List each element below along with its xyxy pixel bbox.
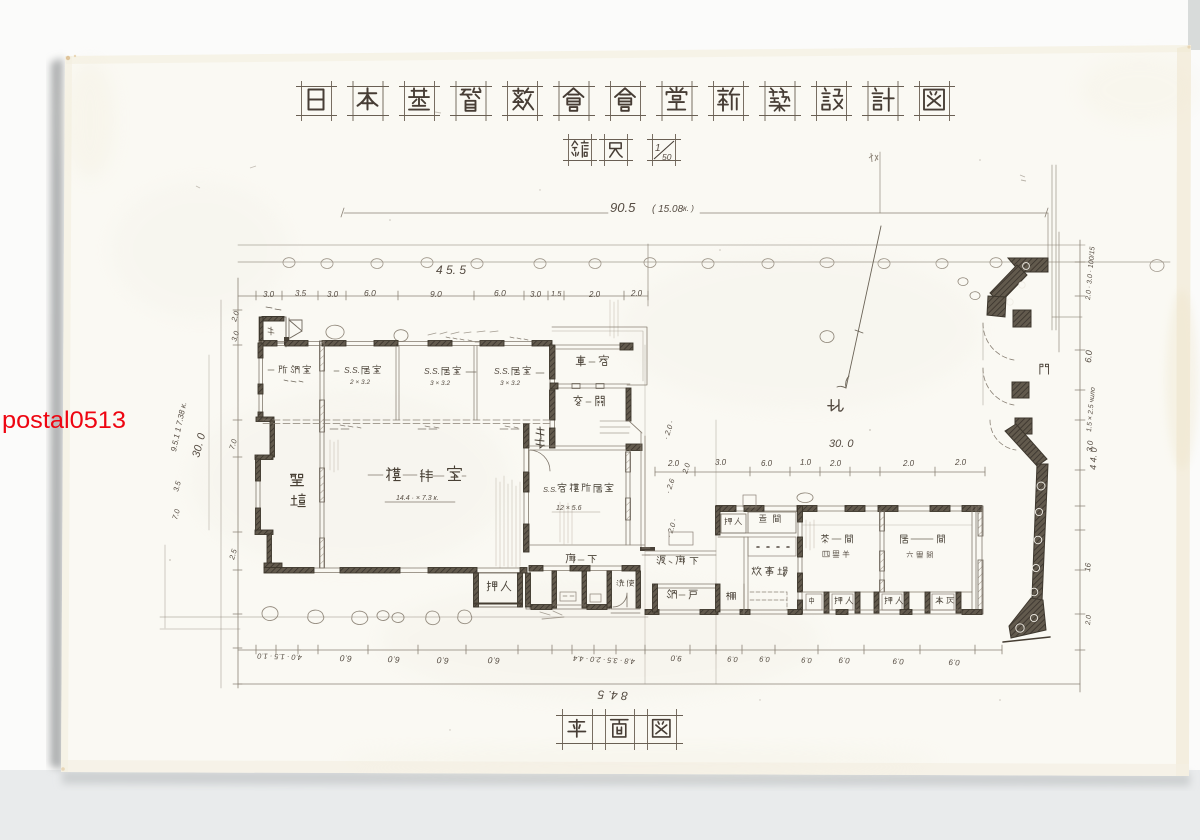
svg-text:0.9: 0.9 [758, 654, 770, 664]
svg-text:3.0: 3.0 [263, 290, 275, 299]
svg-text:4 4. 0: 4 4. 0 [1088, 447, 1099, 470]
svg-text:9.0: 9.0 [670, 653, 682, 663]
svg-text:3.0: 3.0 [715, 458, 727, 467]
svg-text:S.S.: S.S. [494, 366, 510, 376]
svg-text:0.9: 0.9 [838, 655, 850, 665]
svg-text:4.0 · 1.5 · 1.0: 4.0 · 1.5 · 1.0 [256, 651, 302, 662]
svg-text:9.0: 9.0 [430, 289, 442, 299]
svg-text:2.0: 2.0 [630, 289, 643, 298]
svg-text:6.0: 6.0 [1083, 350, 1094, 363]
svg-text:6.0: 6.0 [364, 288, 376, 298]
svg-text:2 × 3.2: 2 × 3.2 [349, 379, 370, 386]
svg-text:8 4. 5: 8 4. 5 [597, 687, 628, 703]
svg-text:2.0: 2.0 [902, 459, 915, 468]
svg-text:2.0: 2.0 [588, 290, 601, 299]
svg-text:S.S.: S.S. [424, 366, 440, 376]
svg-text:( 15.08: ( 15.08 [652, 204, 684, 215]
svg-text:3.5: 3.5 [295, 289, 307, 298]
svg-text:2.0: 2.0 [1085, 615, 1093, 626]
svg-text:6.0: 6.0 [339, 653, 352, 664]
svg-text:1.0: 1.0 [800, 458, 812, 467]
svg-text:4 5. 5: 4 5. 5 [436, 263, 466, 277]
svg-text:postal0513: postal0513 [2, 407, 126, 434]
svg-text:1: 1 [655, 143, 661, 154]
svg-text:6.0: 6.0 [436, 655, 449, 666]
svg-text:0.9: 0.9 [948, 657, 960, 667]
svg-text:3 × 3.2: 3 × 3.2 [430, 380, 450, 387]
svg-text:6.0: 6.0 [494, 288, 506, 298]
svg-text:6.0: 6.0 [761, 459, 773, 468]
svg-text:S.S.: S.S. [543, 485, 557, 494]
svg-text:к. ): к. ) [683, 204, 694, 213]
svg-text:6.0: 6.0 [387, 654, 400, 665]
svg-text:2.0: 2.0 [829, 459, 842, 468]
svg-text:2.0: 2.0 [954, 458, 967, 467]
svg-text:16: 16 [1083, 562, 1093, 572]
svg-text:3.0: 3.0 [530, 290, 542, 299]
svg-text:0.9: 0.9 [726, 654, 738, 664]
svg-text:3.0: 3.0 [327, 290, 339, 299]
svg-text:12 × 5.6: 12 × 5.6 [556, 505, 582, 512]
svg-text:50: 50 [662, 152, 672, 162]
svg-text:1.5: 1.5 [551, 289, 562, 298]
svg-text:2.0: 2.0 [667, 459, 680, 468]
svg-text:0.9: 0.9 [892, 656, 904, 666]
svg-text:90.5: 90.5 [610, 200, 636, 215]
svg-text:6.0: 6.0 [487, 655, 500, 666]
svg-text:30. 0: 30. 0 [829, 438, 854, 450]
svg-text:14.4 · × 7.3 к.: 14.4 · × 7.3 к. [396, 495, 439, 502]
svg-text:S.S.: S.S. [344, 365, 360, 375]
svg-text:0.9: 0.9 [800, 655, 812, 665]
svg-text:3 × 3.2: 3 × 3.2 [500, 380, 520, 387]
